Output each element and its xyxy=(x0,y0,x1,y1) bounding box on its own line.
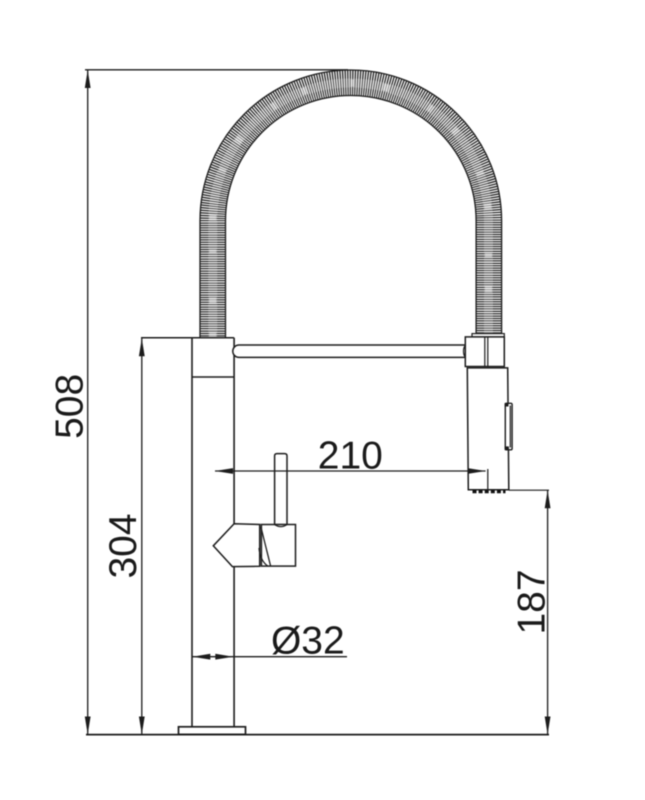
svg-text:187: 187 xyxy=(511,569,554,634)
svg-text:508: 508 xyxy=(49,374,92,439)
svg-text:304: 304 xyxy=(102,513,145,578)
svg-text:210: 210 xyxy=(318,435,383,478)
svg-text:Ø32: Ø32 xyxy=(271,619,345,662)
